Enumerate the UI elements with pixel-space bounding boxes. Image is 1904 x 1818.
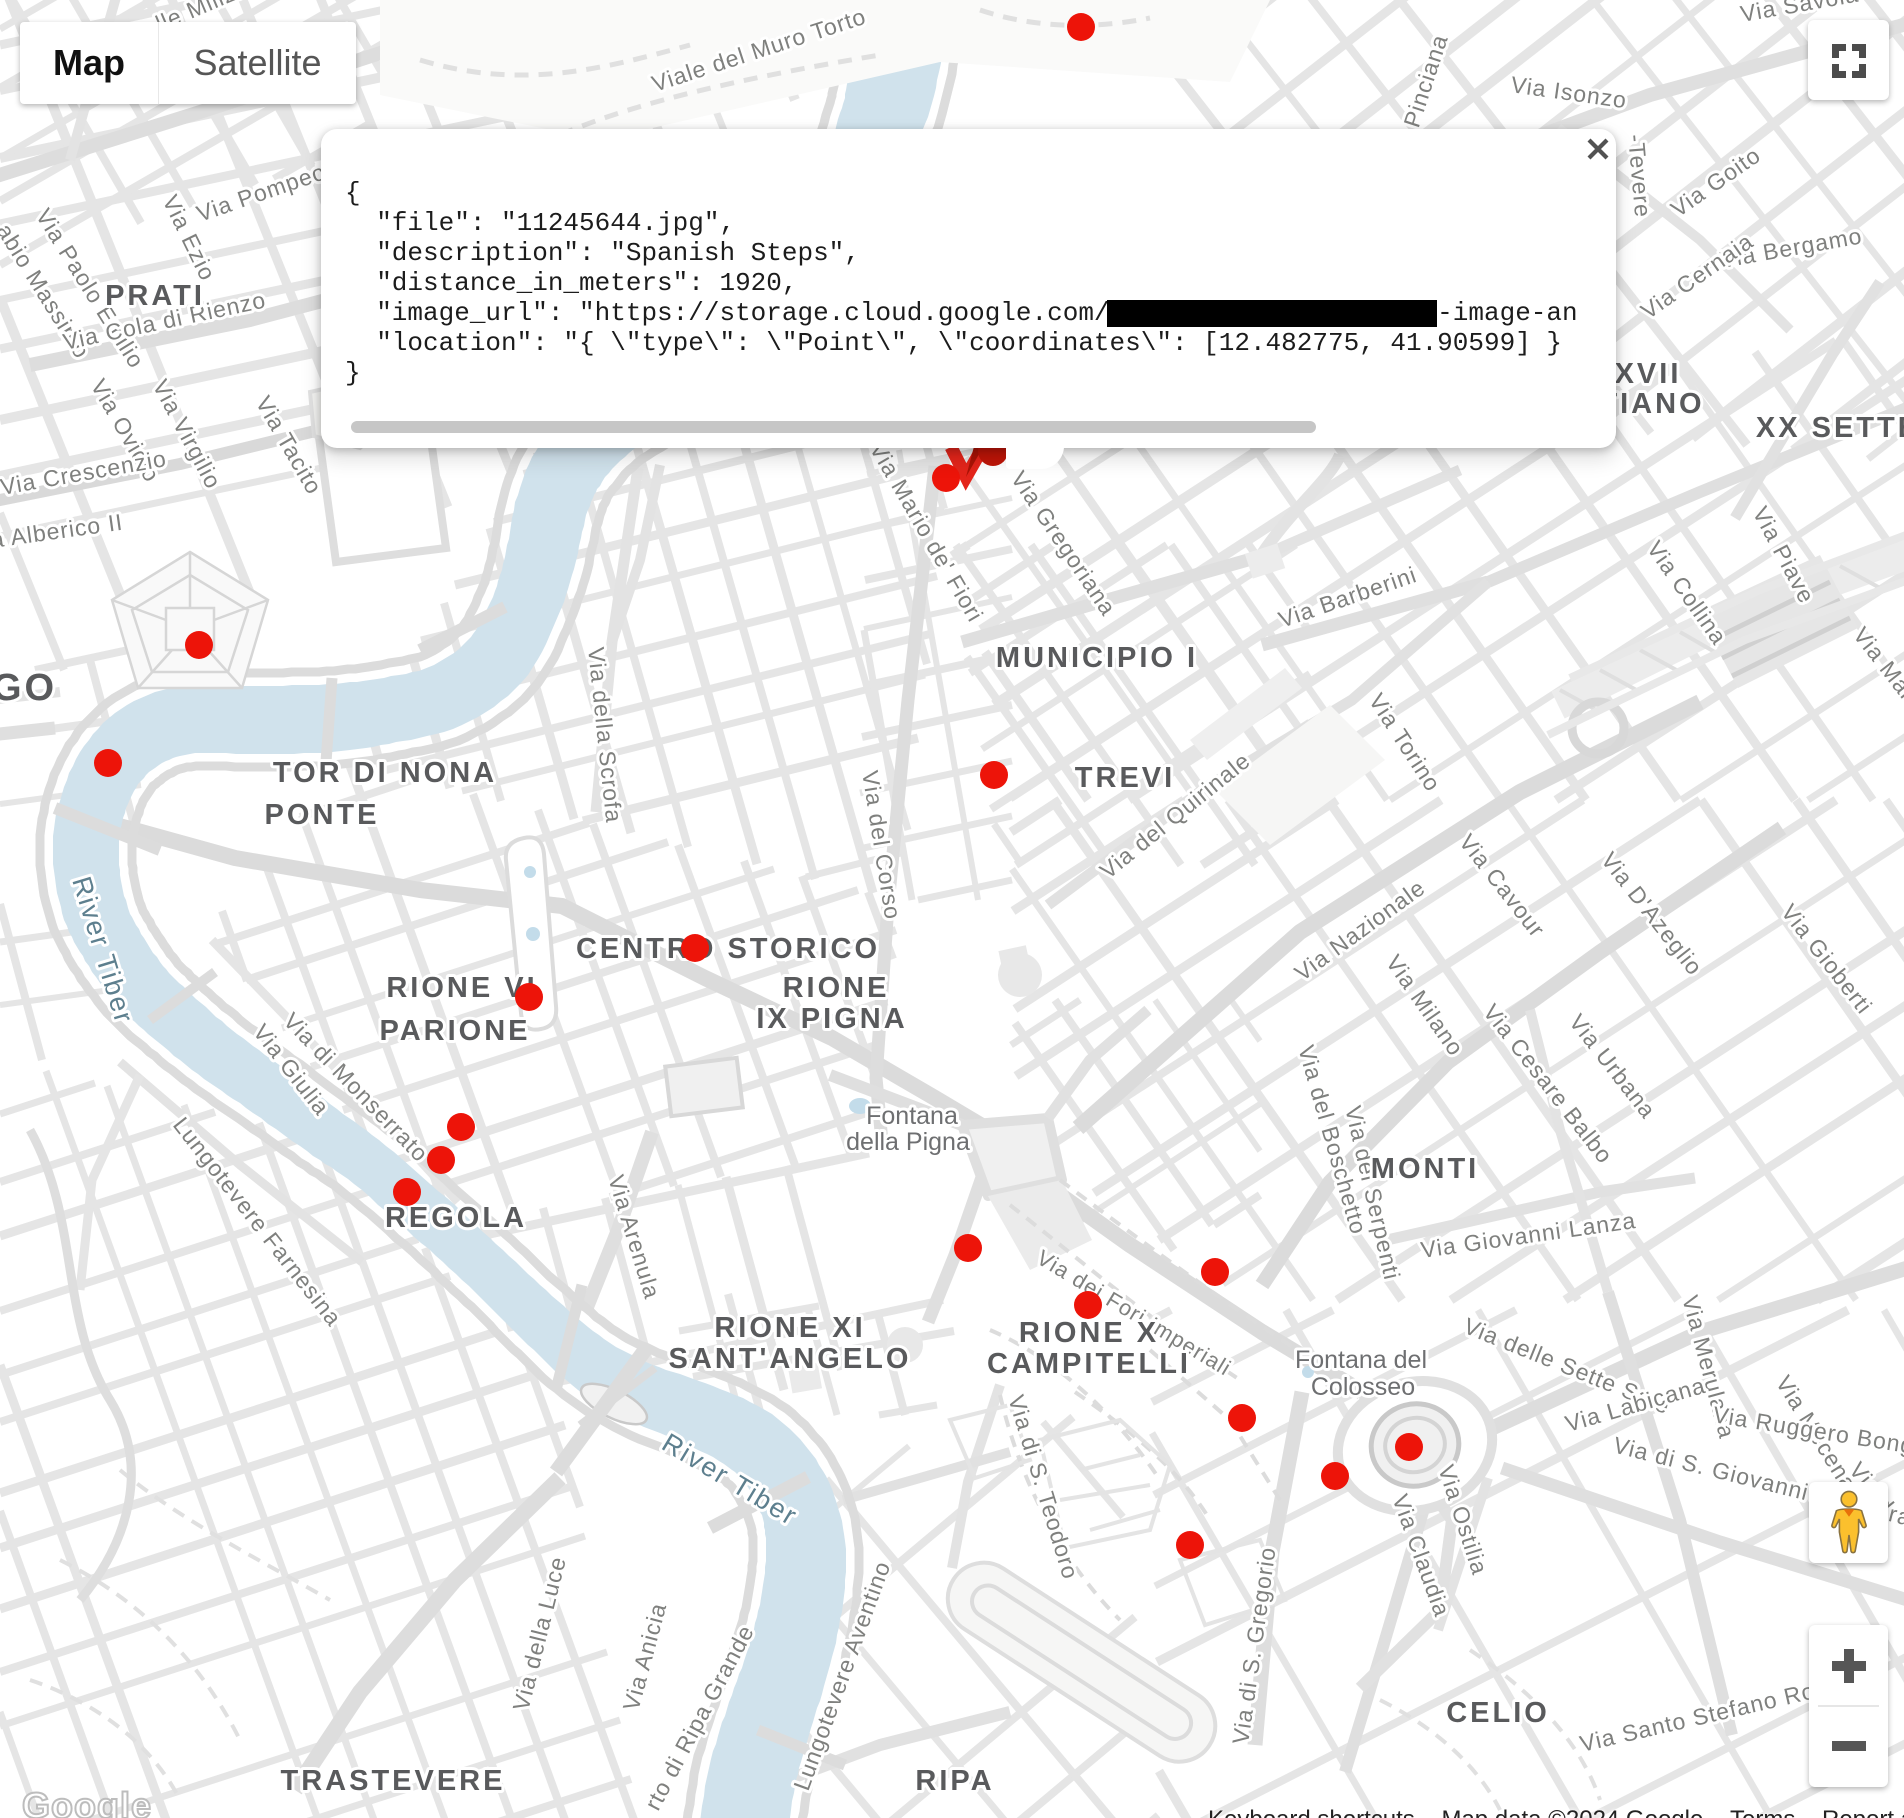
svg-text:RIONE VI: RIONE VI: [386, 972, 537, 1004]
svg-text:REGOLA: REGOLA: [385, 1202, 527, 1234]
svg-text:XX SETTE: XX SETTE: [1756, 412, 1904, 444]
svg-text:SANT'ANGELO: SANT'ANGELO: [669, 1343, 912, 1375]
svg-text:Fontana del: Fontana del: [1295, 1346, 1427, 1374]
svg-text:PONTE: PONTE: [265, 799, 380, 831]
svg-text:MONTI: MONTI: [1371, 1153, 1479, 1185]
svg-text:PARIONE: PARIONE: [380, 1015, 531, 1047]
svg-text:TRASTEVERE: TRASTEVERE: [281, 1765, 506, 1797]
svg-text:Colosseo: Colosseo: [1311, 1373, 1415, 1401]
svg-text:XVII: XVII: [1615, 358, 1682, 390]
svg-text:RIONE XI: RIONE XI: [714, 1312, 865, 1344]
svg-text:della Pigna: della Pigna: [846, 1128, 970, 1156]
svg-text:Fontana: Fontana: [866, 1102, 958, 1130]
svg-text:RIPA: RIPA: [915, 1765, 994, 1797]
svg-text:TREVI: TREVI: [1075, 762, 1175, 794]
svg-text:CELIO: CELIO: [1446, 1697, 1550, 1729]
svg-text:MUNICIPIO I: MUNICIPIO I: [996, 642, 1198, 674]
svg-text:CAMPITELLI: CAMPITELLI: [987, 1348, 1191, 1380]
svg-text:RIONE X: RIONE X: [1019, 1317, 1159, 1349]
svg-text:GO: GO: [0, 667, 57, 709]
svg-text:TOR DI NONA: TOR DI NONA: [273, 757, 497, 789]
svg-text:CENTRO STORICO: CENTRO STORICO: [576, 933, 880, 965]
svg-text:IX PIGNA: IX PIGNA: [756, 1003, 907, 1035]
svg-text:PRATI: PRATI: [105, 280, 205, 312]
svg-text:RIONE: RIONE: [783, 972, 890, 1004]
